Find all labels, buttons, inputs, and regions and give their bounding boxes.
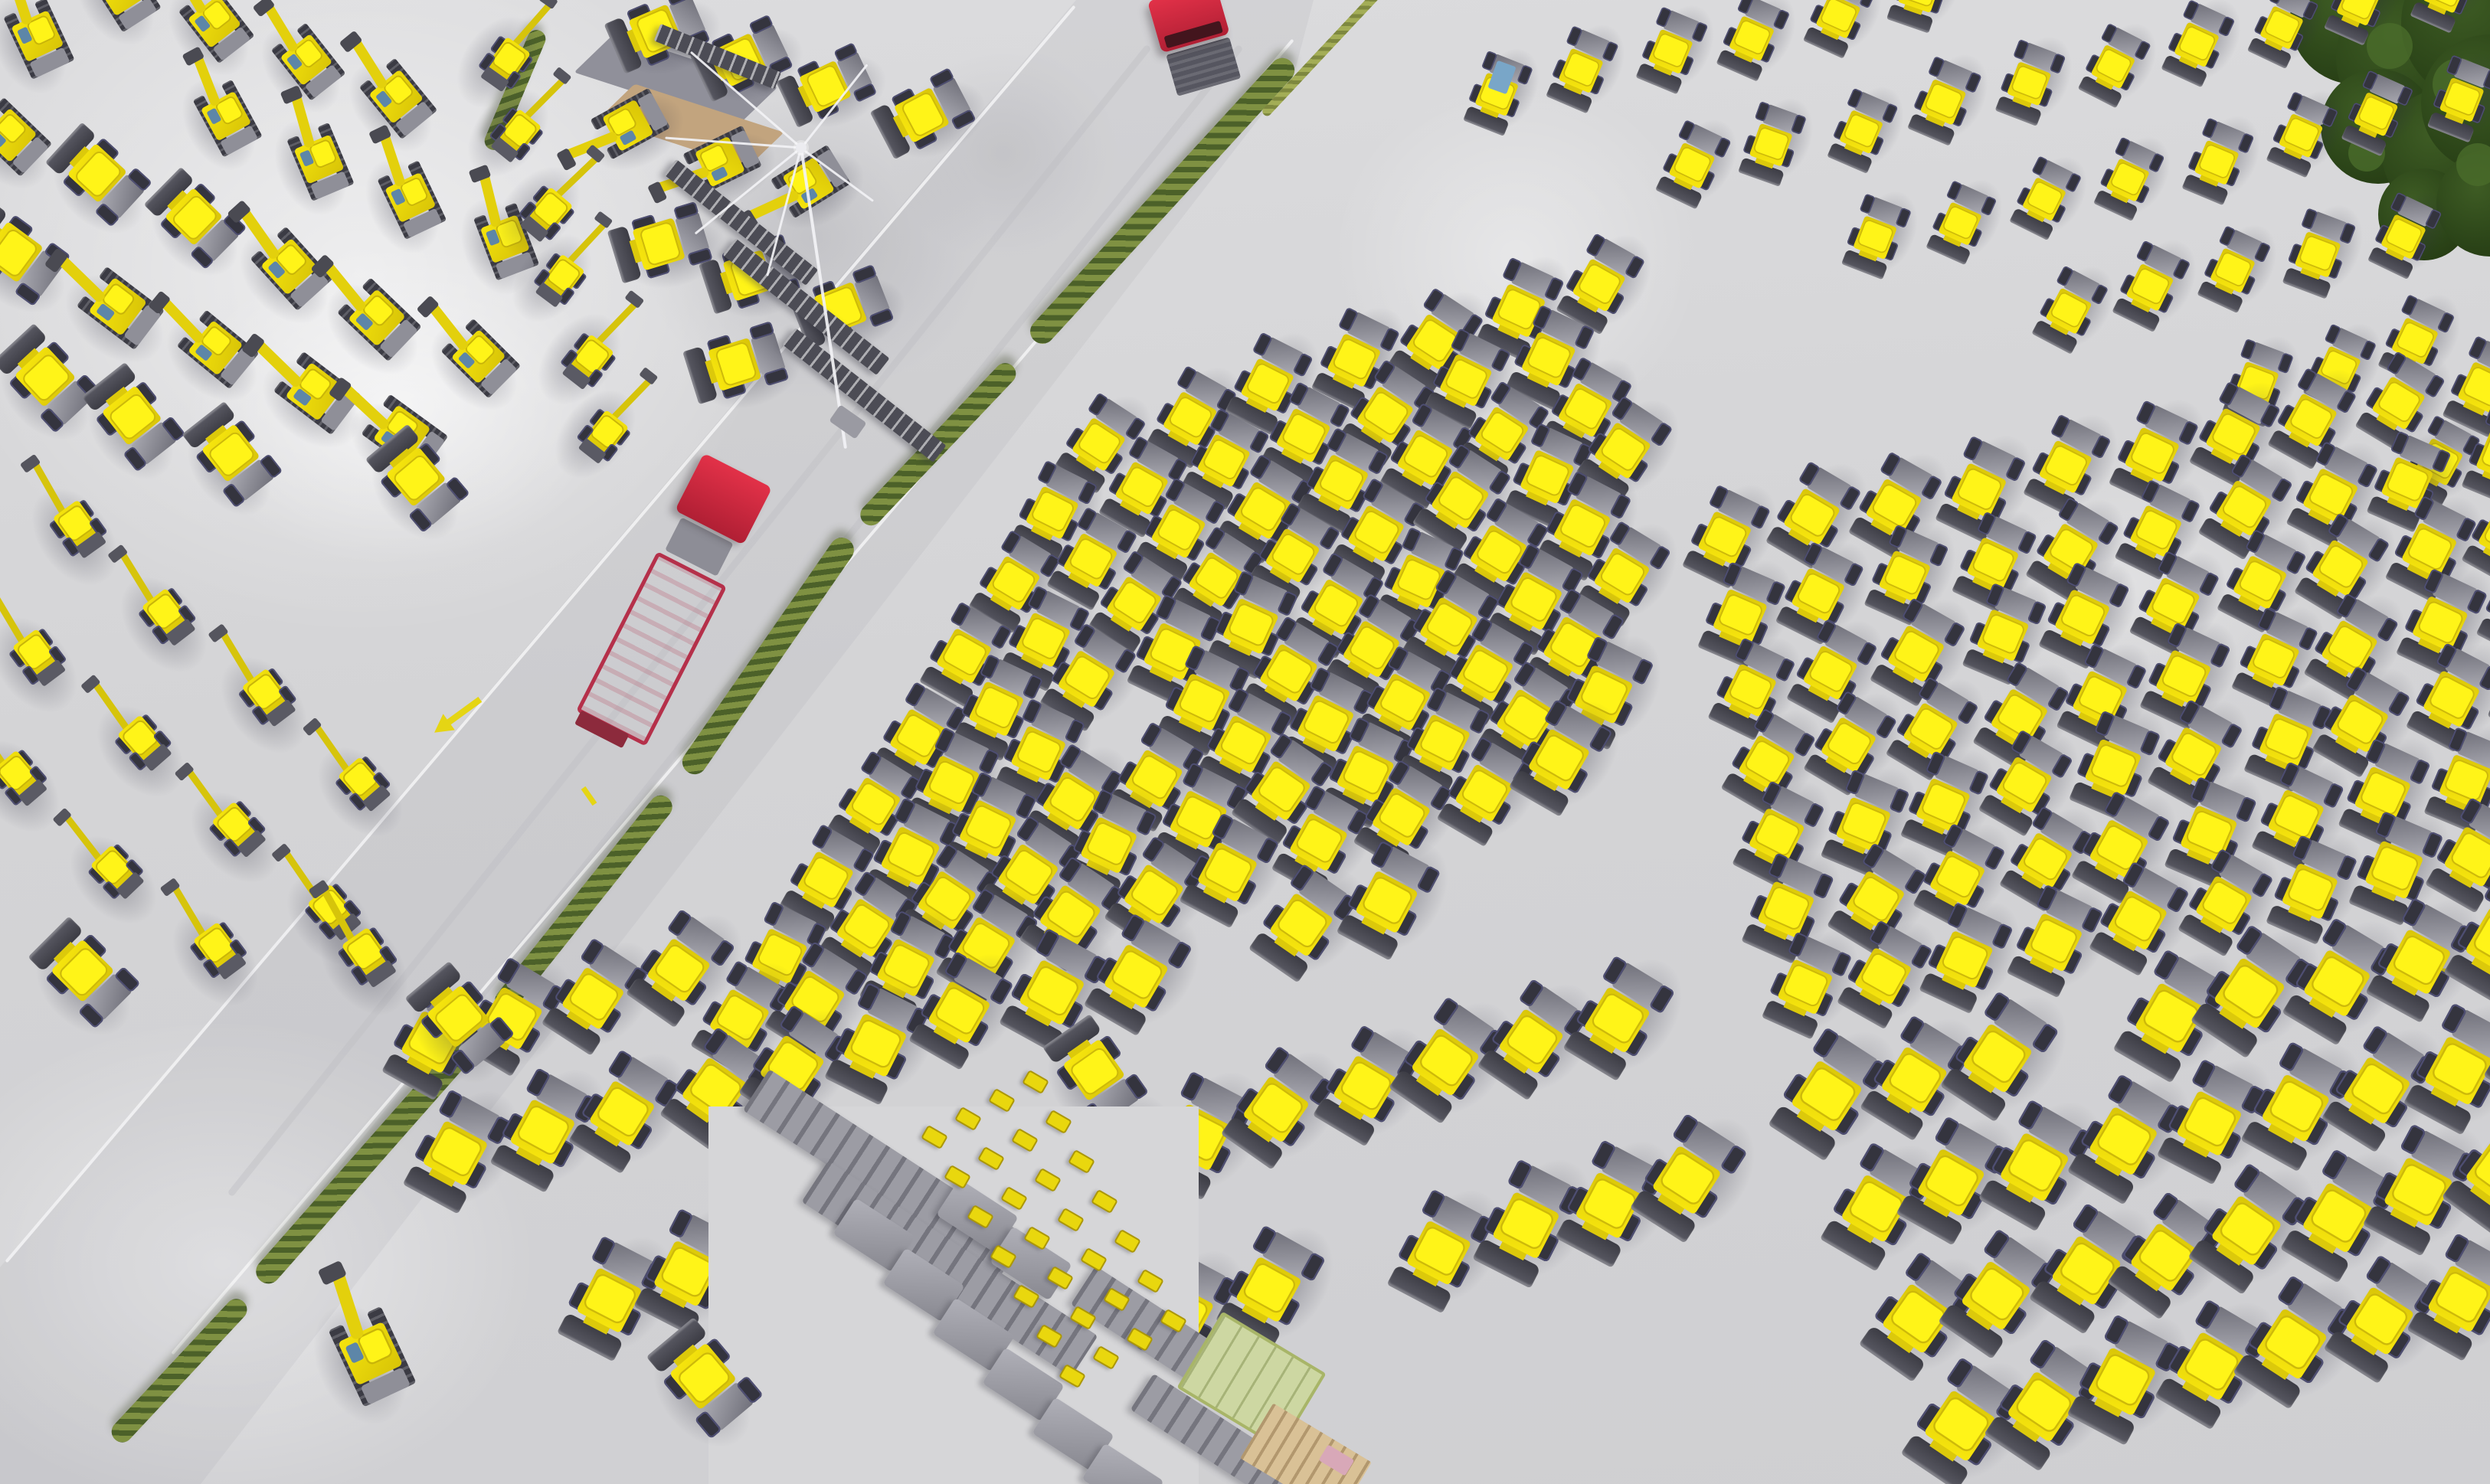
excavator xyxy=(0,0,80,86)
loader xyxy=(1994,38,2065,126)
loader xyxy=(2006,882,2103,998)
loader xyxy=(1907,54,1981,146)
backhoe xyxy=(0,717,70,825)
loader xyxy=(1926,178,1997,265)
mast-hub xyxy=(796,142,807,153)
excavator xyxy=(312,1281,423,1415)
loader xyxy=(2112,239,2191,333)
loader xyxy=(2009,154,2082,240)
backhoe-bucket xyxy=(594,211,613,228)
loader xyxy=(1715,0,1788,82)
excavator xyxy=(255,5,351,107)
backhoe xyxy=(184,768,290,877)
excavator xyxy=(342,40,443,145)
loader xyxy=(81,362,186,473)
backhoe xyxy=(166,887,270,999)
loader xyxy=(1841,192,1911,280)
excavator xyxy=(179,60,267,163)
loader xyxy=(1562,953,1675,1081)
loader xyxy=(1886,0,1955,34)
loader xyxy=(2181,116,2254,205)
excavator xyxy=(571,83,676,173)
excavator xyxy=(275,103,359,208)
equipment-yard-aerial-photo xyxy=(0,0,2490,1484)
loader xyxy=(44,121,153,227)
small-yellow-part xyxy=(1022,1070,1049,1094)
loader xyxy=(2197,224,2271,313)
backhoe xyxy=(115,554,220,665)
loader xyxy=(1546,24,1618,113)
loader xyxy=(1654,119,1730,210)
loader xyxy=(182,400,283,508)
backhoe xyxy=(63,812,167,918)
excavator xyxy=(318,260,427,368)
loader xyxy=(1635,5,1708,95)
excavator xyxy=(365,140,452,245)
loader xyxy=(1802,0,1875,59)
excavator xyxy=(163,0,260,70)
loader xyxy=(28,916,141,1029)
loader xyxy=(1826,86,1897,173)
backhoe xyxy=(0,594,90,706)
loader xyxy=(607,203,715,285)
loader xyxy=(2031,264,2109,355)
excavator xyxy=(72,0,167,39)
loader xyxy=(682,322,791,405)
loader xyxy=(2077,21,2151,108)
loader xyxy=(2093,136,2164,221)
loader xyxy=(2265,90,2337,178)
excavator xyxy=(423,301,526,404)
loader xyxy=(2160,0,2234,88)
loader xyxy=(2282,206,2355,299)
backhoe-bucket xyxy=(639,367,658,385)
loader xyxy=(1737,100,1805,187)
backhoe xyxy=(311,724,414,831)
loader xyxy=(2367,190,2441,279)
